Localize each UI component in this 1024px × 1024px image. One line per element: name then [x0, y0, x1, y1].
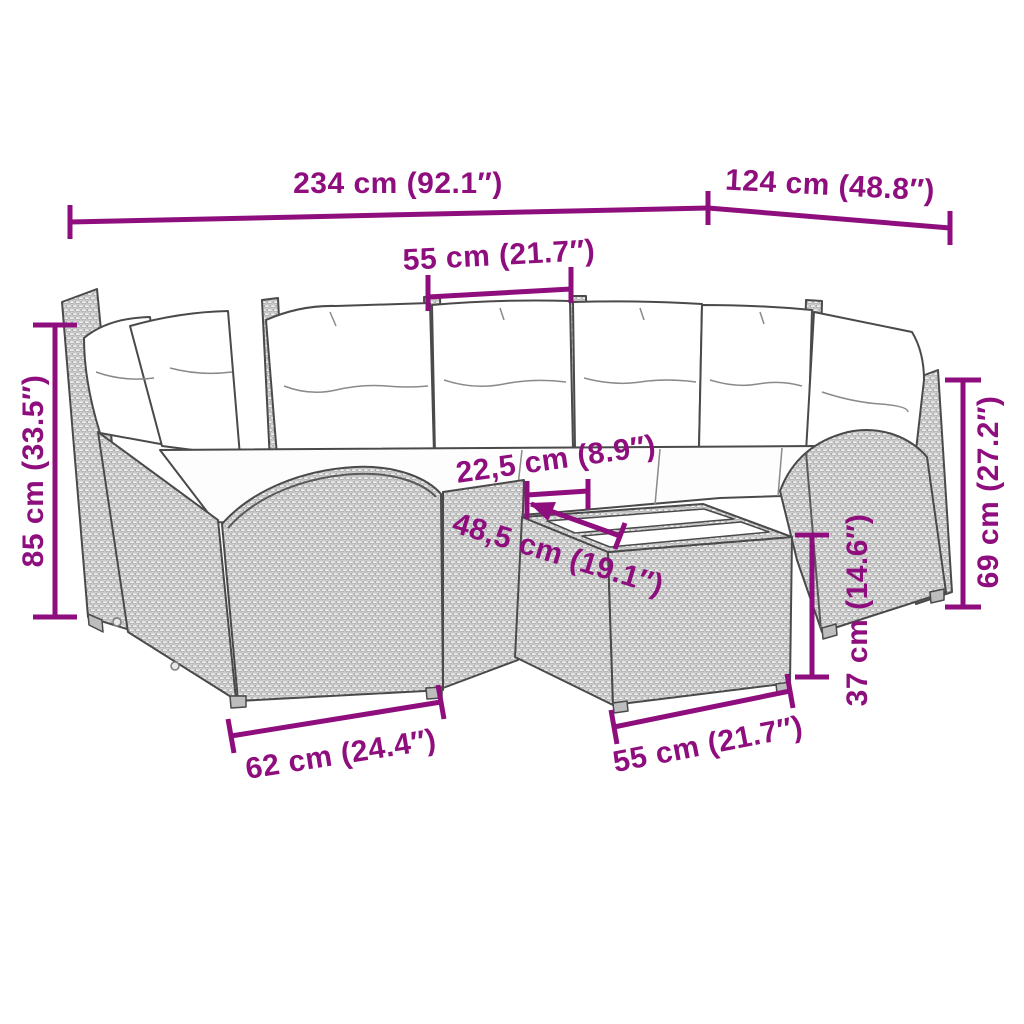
- dim-line-overall-depth: [708, 208, 950, 245]
- coffee-table: [515, 504, 792, 705]
- dim-label-table-height: 37 cm (14.6″): [841, 514, 875, 707]
- dim-label-side-height: 69 cm (27.2″): [972, 396, 1006, 589]
- product-dimension-diagram: 234 cm (92.1″) 124 cm (48.8″) 55 cm (21.…: [0, 0, 1024, 1024]
- left-armrest: [222, 467, 443, 701]
- corner-seat-front: [443, 480, 524, 688]
- dim-label-overall-width: 234 cm (92.1″): [293, 167, 503, 201]
- dim-label-back-height: 85 cm (33.5″): [17, 375, 51, 568]
- sofa-illustration: [0, 0, 1024, 1024]
